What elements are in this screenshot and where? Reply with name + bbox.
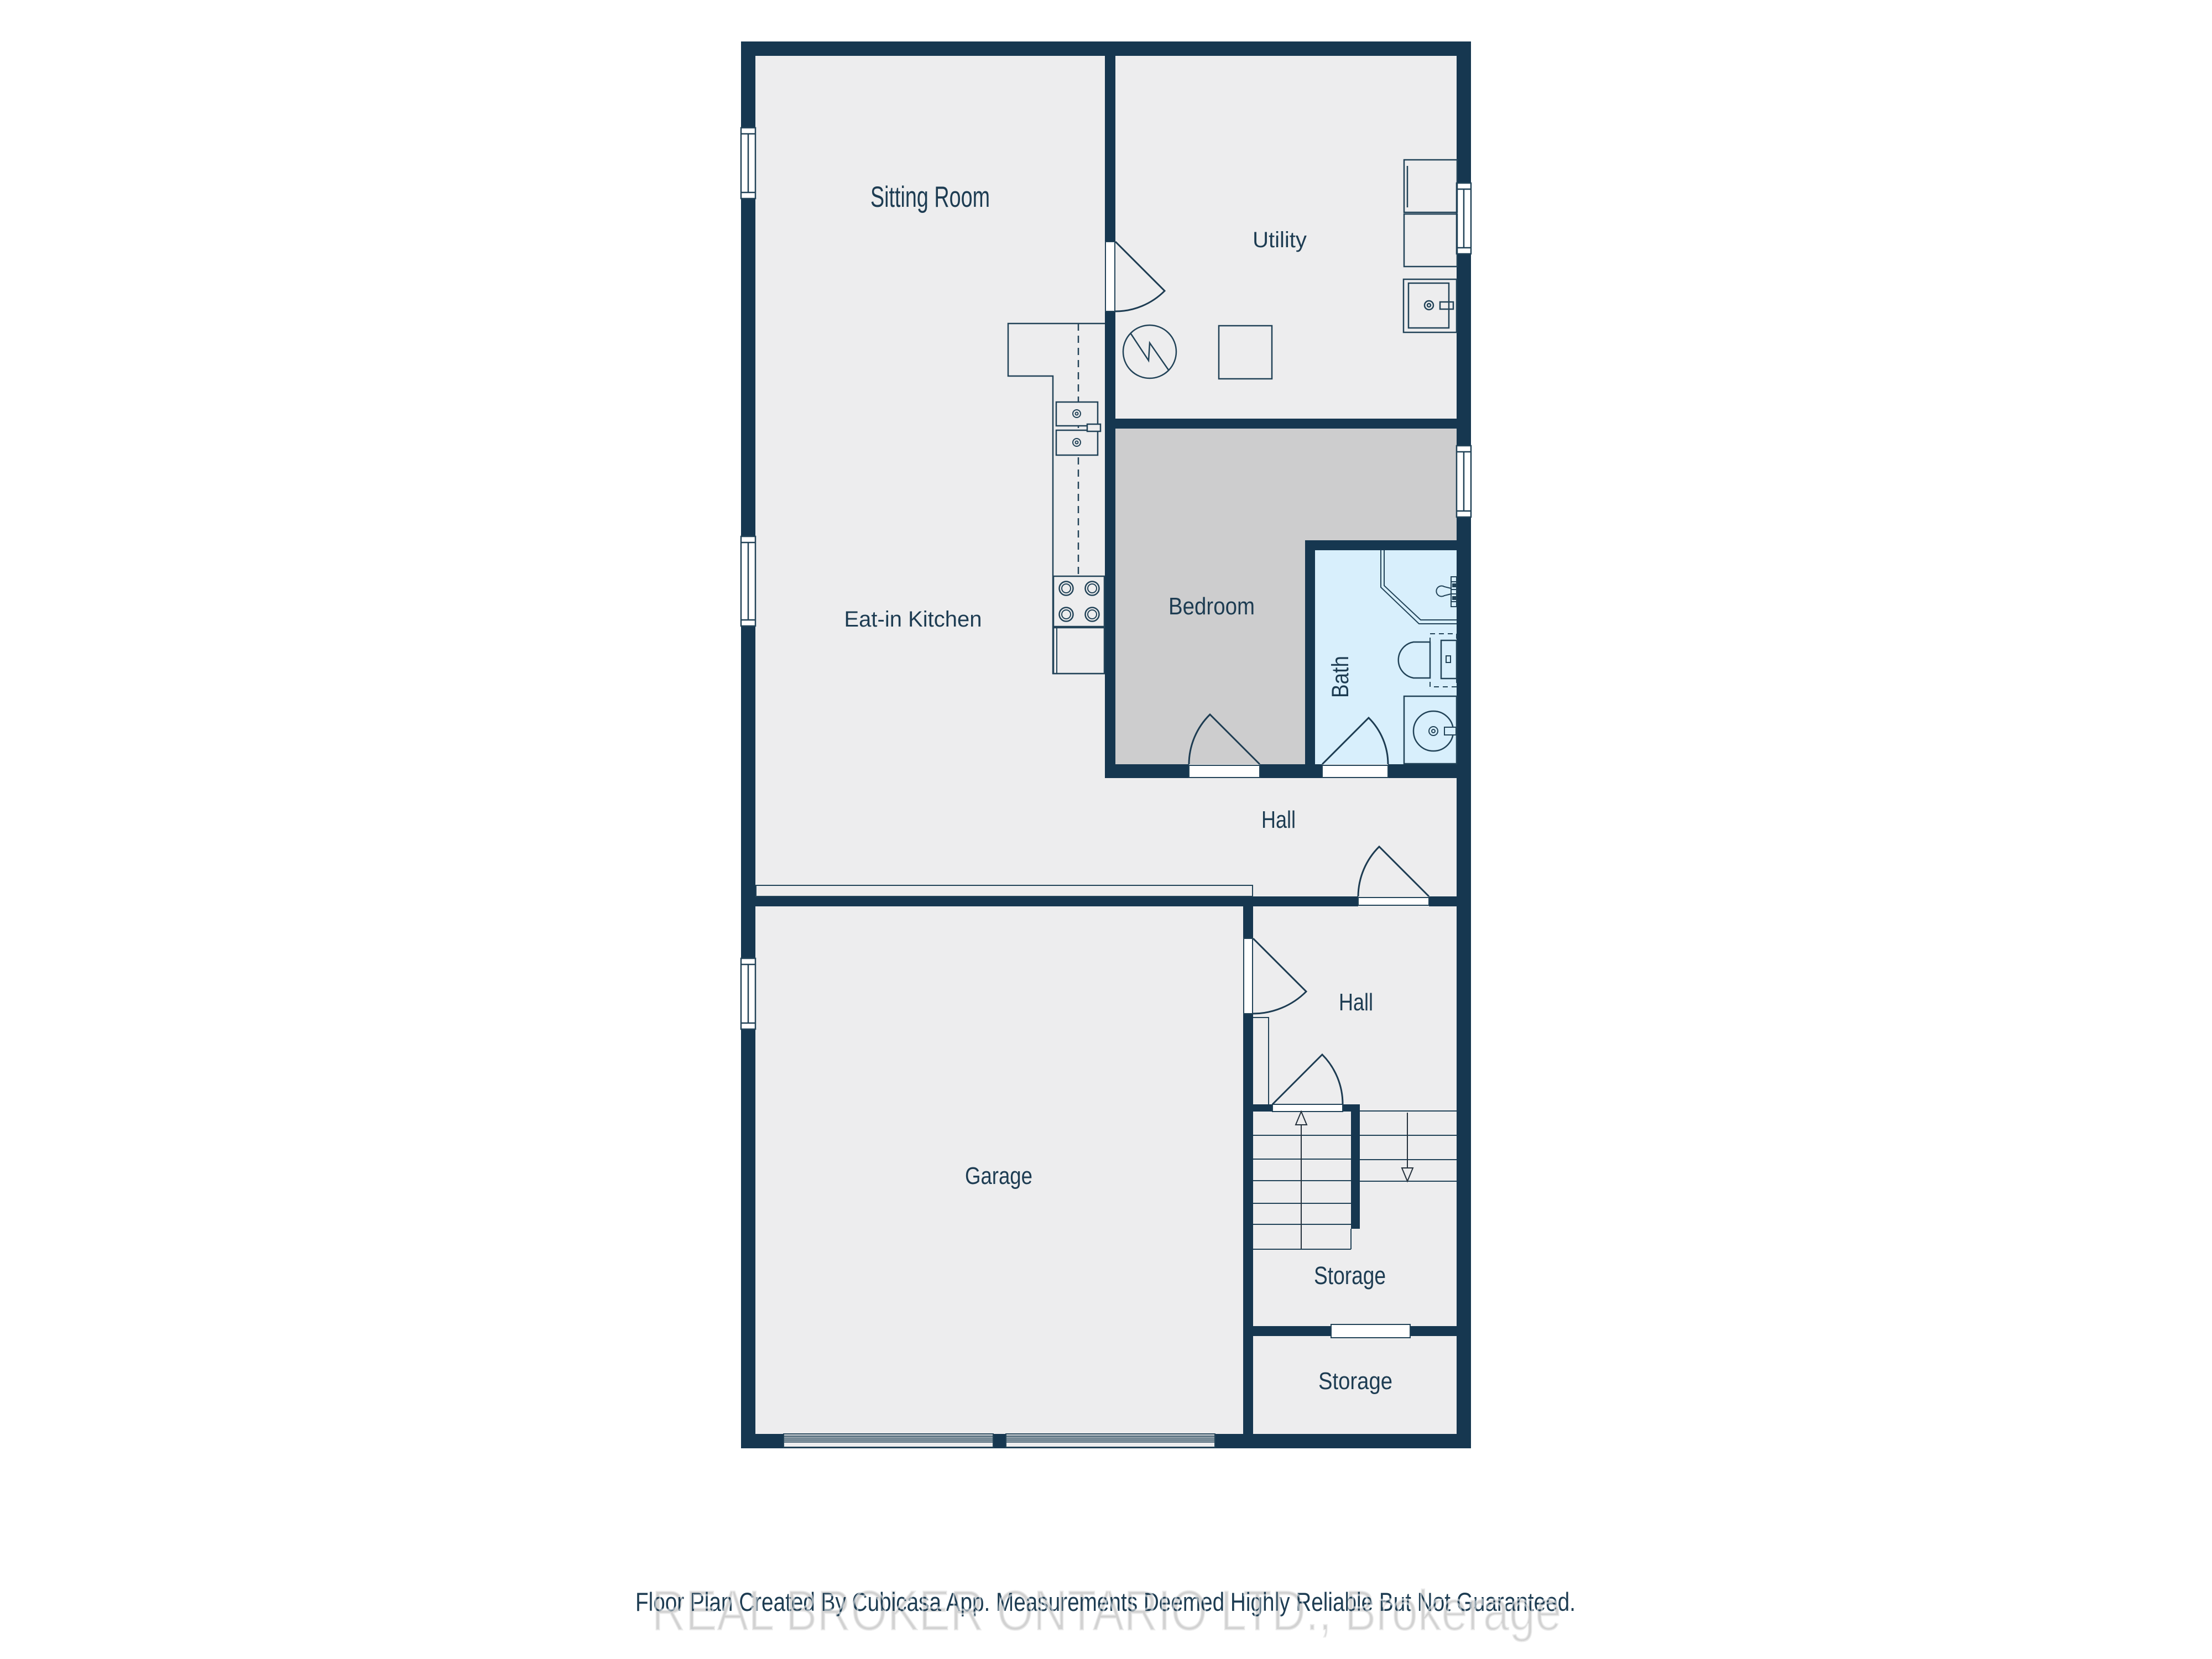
svg-text:Storage: Storage: [1314, 1261, 1386, 1290]
svg-text:Garage: Garage: [965, 1162, 1032, 1190]
svg-text:Storage: Storage: [1318, 1368, 1392, 1395]
svg-text:Bedroom: Bedroom: [1168, 593, 1255, 620]
svg-text:Eat-in Kitchen: Eat-in Kitchen: [844, 607, 982, 632]
svg-text:REAL BROKER ONTARIO LTD., Brok: REAL BROKER ONTARIO LTD., Brokerage: [652, 1579, 1562, 1643]
svg-text:Sitting Room: Sitting Room: [870, 181, 990, 213]
svg-text:Bath: Bath: [1327, 656, 1354, 698]
svg-text:Utility: Utility: [1253, 228, 1307, 252]
svg-text:Hall: Hall: [1261, 806, 1296, 833]
svg-text:Hall: Hall: [1339, 989, 1373, 1016]
